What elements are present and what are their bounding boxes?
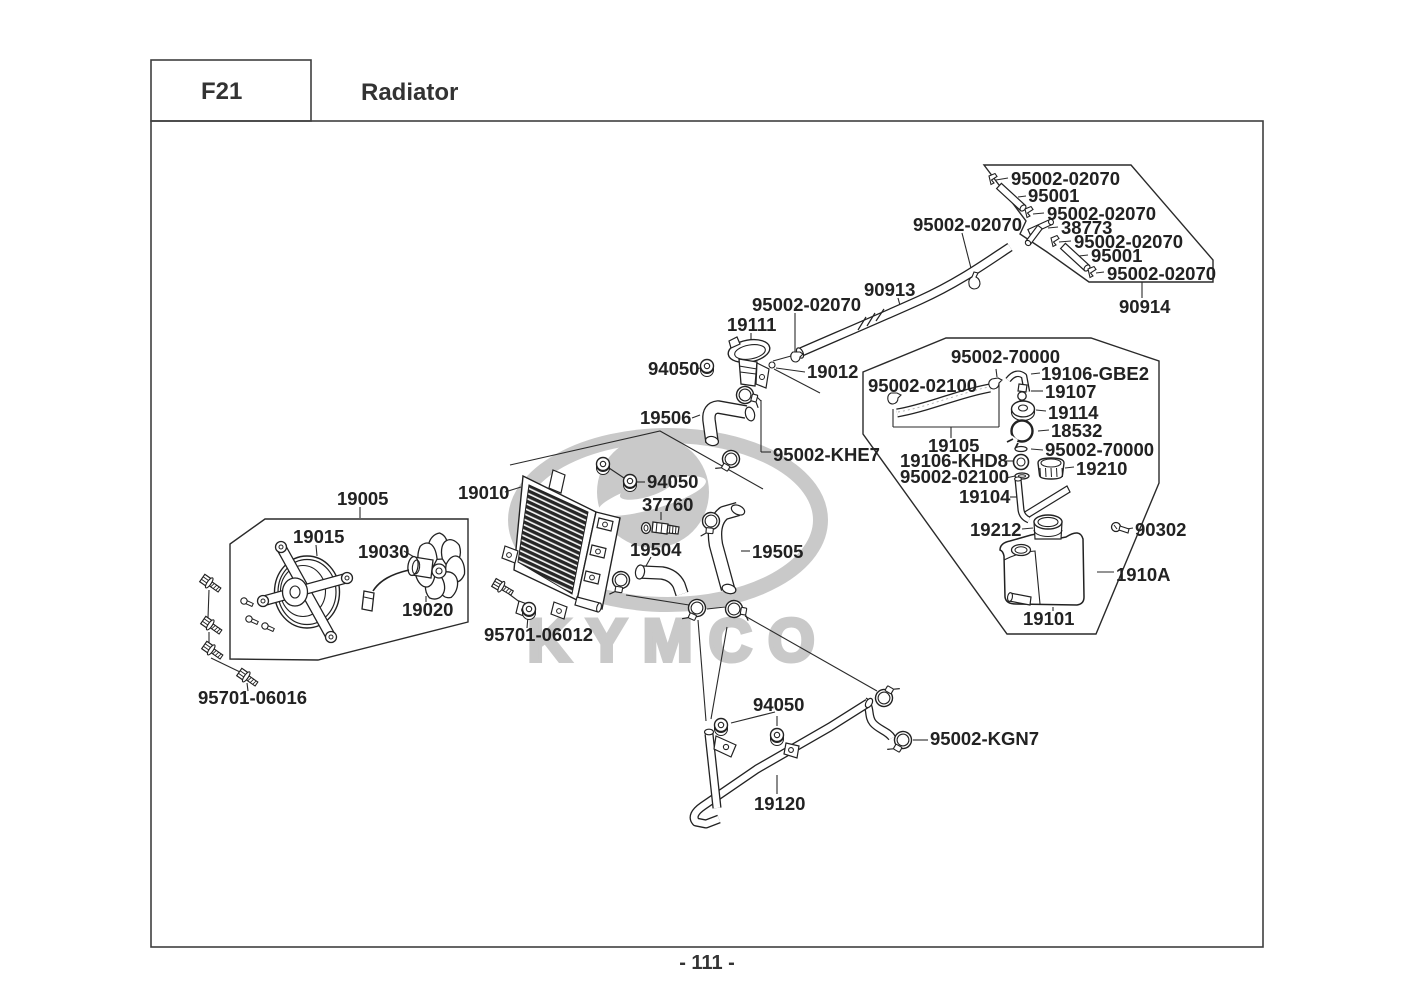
svg-text:95002-02070: 95002-02070 xyxy=(1107,263,1216,284)
svg-text:90913: 90913 xyxy=(864,279,915,300)
svg-text:95002-KHE7: 95002-KHE7 xyxy=(773,444,880,465)
svg-text:19104: 19104 xyxy=(959,486,1011,507)
svg-text:19505: 19505 xyxy=(752,541,803,562)
svg-text:19111: 19111 xyxy=(727,314,776,335)
svg-text:1910A: 1910A xyxy=(1116,564,1171,585)
svg-text:95002-02100: 95002-02100 xyxy=(900,466,1009,487)
svg-text:95701-06012: 95701-06012 xyxy=(484,624,593,645)
svg-text:F21: F21 xyxy=(201,78,242,105)
svg-text:19010: 19010 xyxy=(458,482,509,503)
svg-text:19015: 19015 xyxy=(293,526,344,547)
svg-text:19012: 19012 xyxy=(807,361,858,382)
svg-text:19020: 19020 xyxy=(402,599,453,620)
svg-text:95002-02100: 95002-02100 xyxy=(868,375,977,396)
svg-text:37760: 37760 xyxy=(642,494,693,515)
svg-text:95002-70000: 95002-70000 xyxy=(1045,439,1154,460)
svg-text:94050: 94050 xyxy=(647,471,698,492)
svg-text:94050: 94050 xyxy=(753,694,804,715)
svg-text:90914: 90914 xyxy=(1119,296,1171,317)
svg-text:90302: 90302 xyxy=(1135,519,1186,540)
svg-text:19504: 19504 xyxy=(630,539,682,560)
svg-text:94050: 94050 xyxy=(648,358,699,379)
svg-text:95002-KGN7: 95002-KGN7 xyxy=(930,728,1039,749)
svg-text:18532: 18532 xyxy=(1051,420,1102,441)
svg-text:19107: 19107 xyxy=(1045,381,1096,402)
svg-text:Radiator: Radiator xyxy=(361,79,458,106)
svg-text:19120: 19120 xyxy=(754,793,805,814)
svg-text:- 111 -: - 111 - xyxy=(679,952,735,974)
svg-text:95002-02070: 95002-02070 xyxy=(913,214,1022,235)
svg-text:19101: 19101 xyxy=(1023,608,1074,629)
svg-text:95002-02070: 95002-02070 xyxy=(752,294,861,315)
svg-text:19210: 19210 xyxy=(1076,458,1127,479)
svg-text:19005: 19005 xyxy=(337,488,388,509)
svg-text:95701-06016: 95701-06016 xyxy=(198,687,307,708)
svg-text:19030: 19030 xyxy=(358,541,409,562)
svg-text:19506: 19506 xyxy=(640,407,691,428)
svg-text:19212: 19212 xyxy=(970,519,1021,540)
